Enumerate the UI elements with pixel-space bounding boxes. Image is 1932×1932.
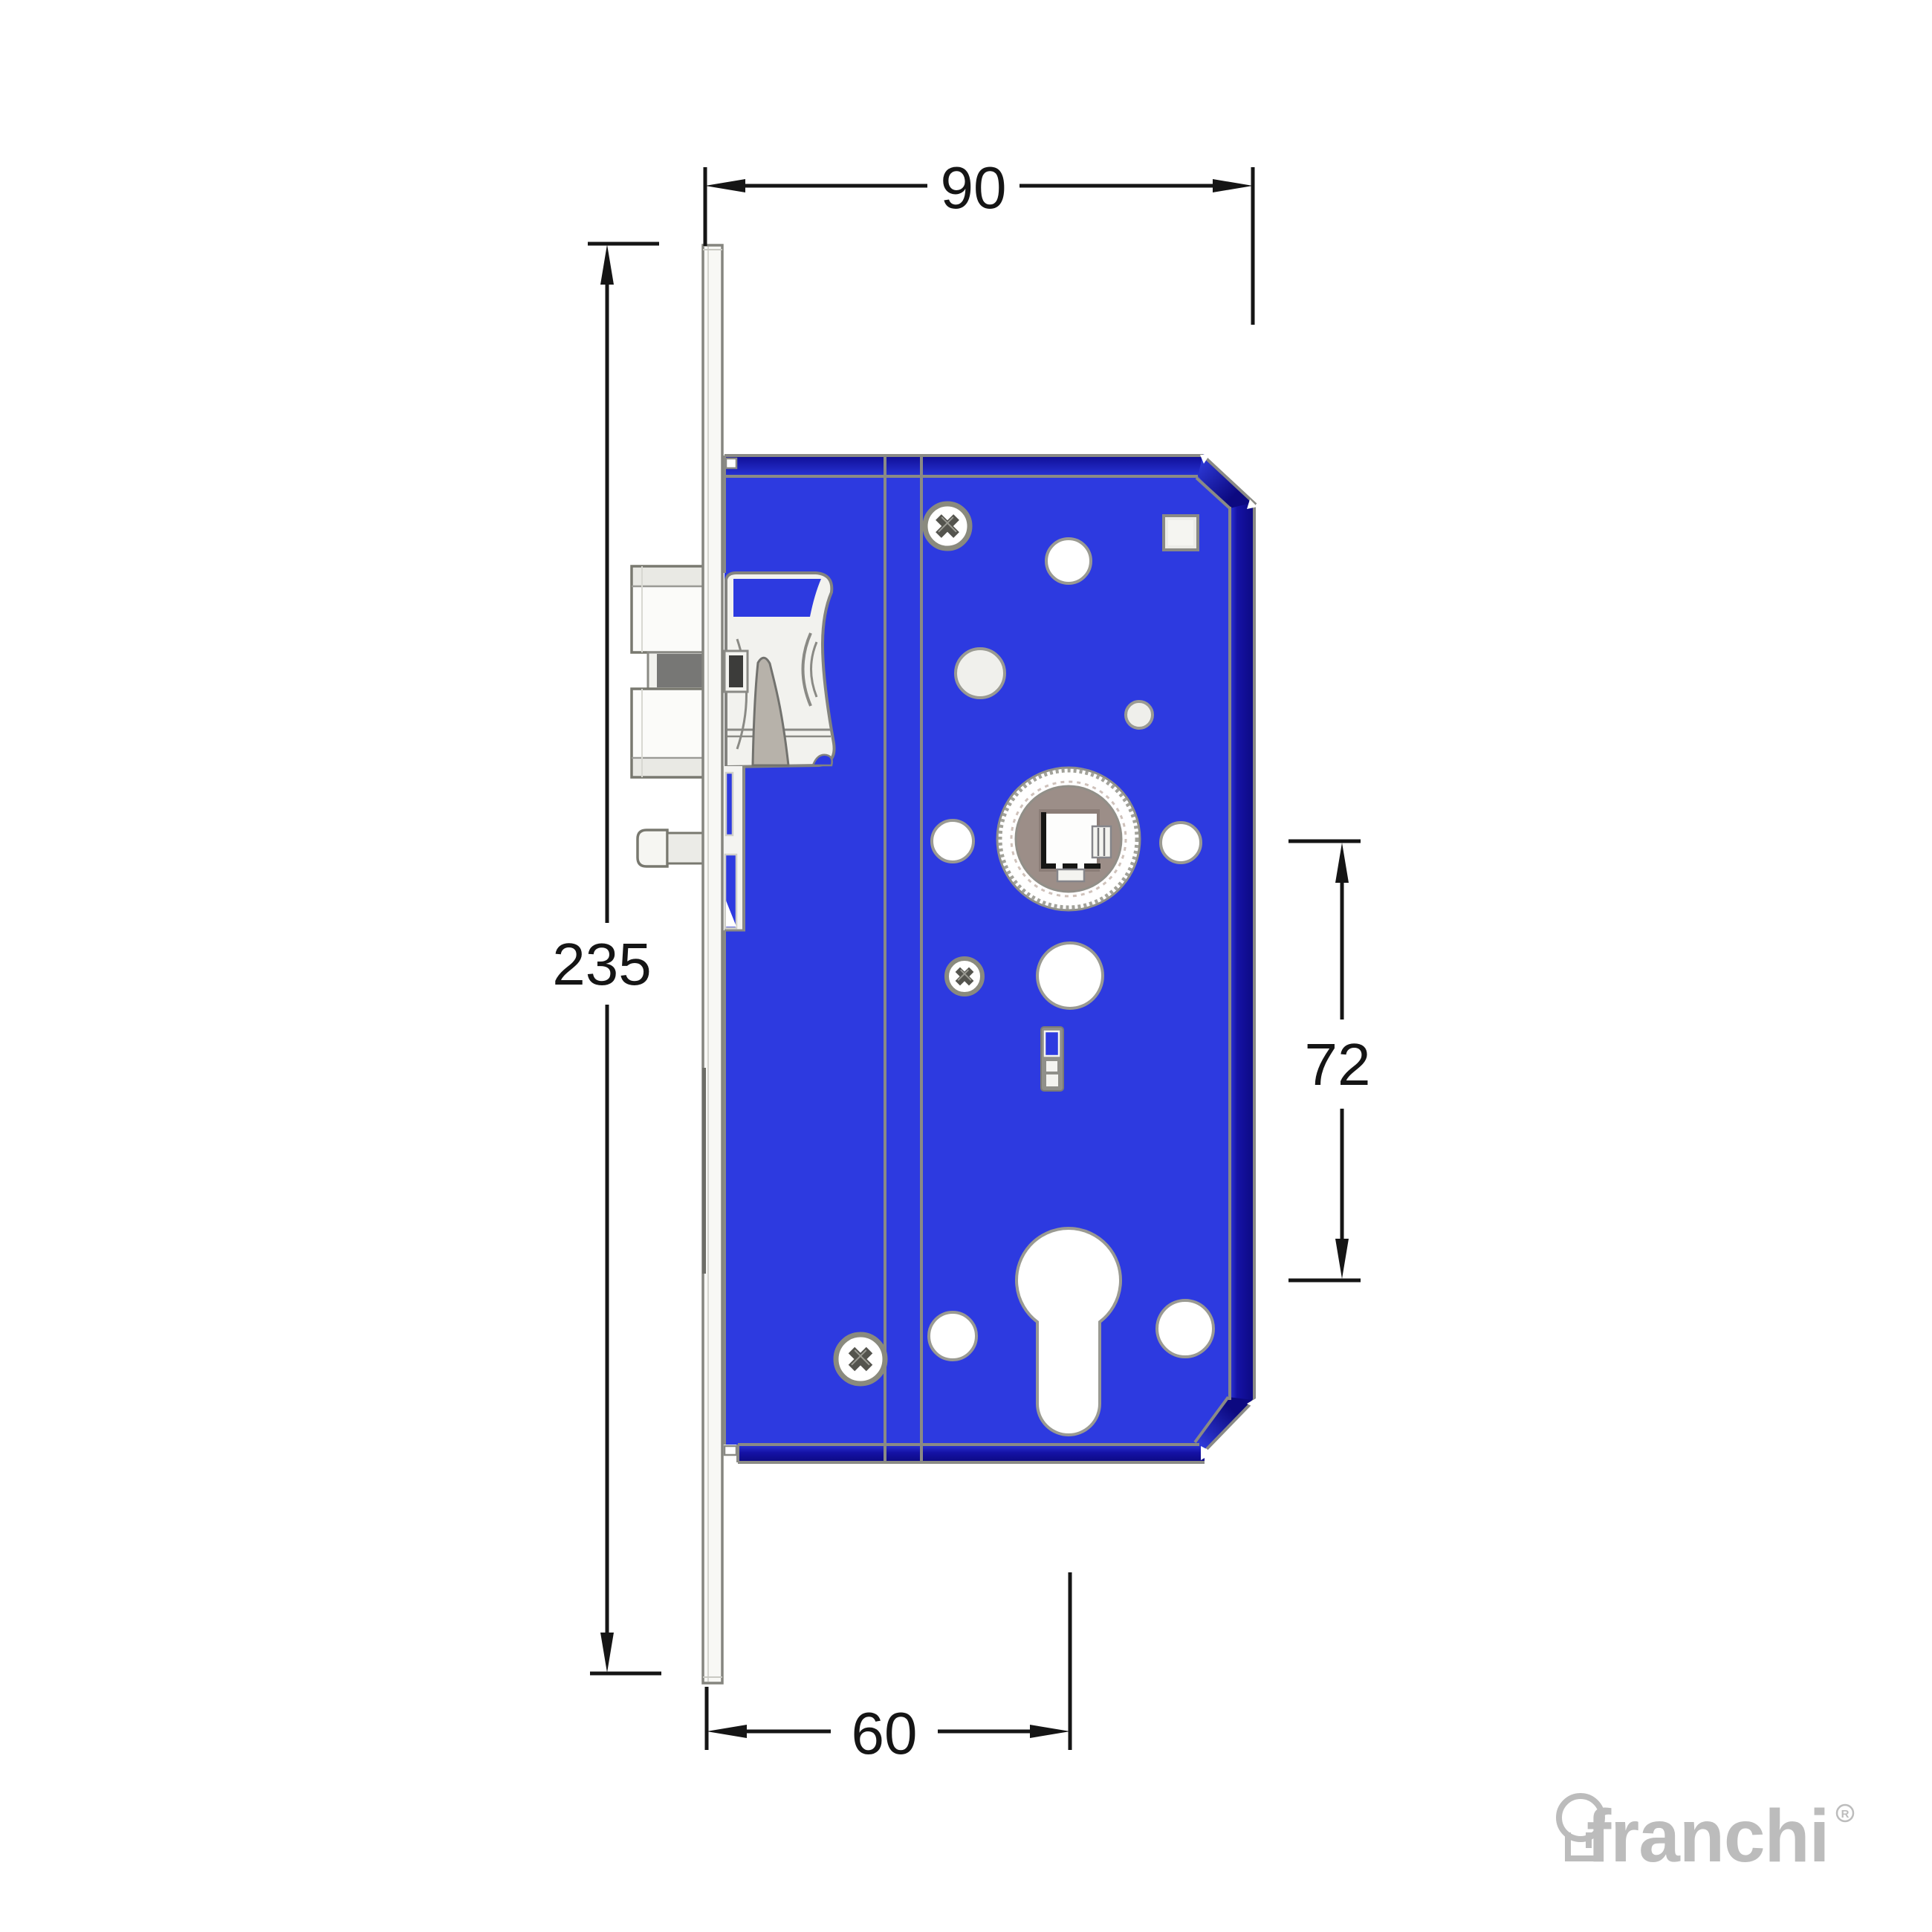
svg-text:90: 90 (941, 155, 1007, 221)
svg-text:60: 60 (852, 1700, 918, 1766)
svg-text:72: 72 (1305, 1031, 1371, 1098)
svg-text:235: 235 (552, 931, 651, 997)
svg-text:R: R (1841, 1808, 1850, 1821)
svg-text:franchi: franchi (1586, 1795, 1829, 1878)
